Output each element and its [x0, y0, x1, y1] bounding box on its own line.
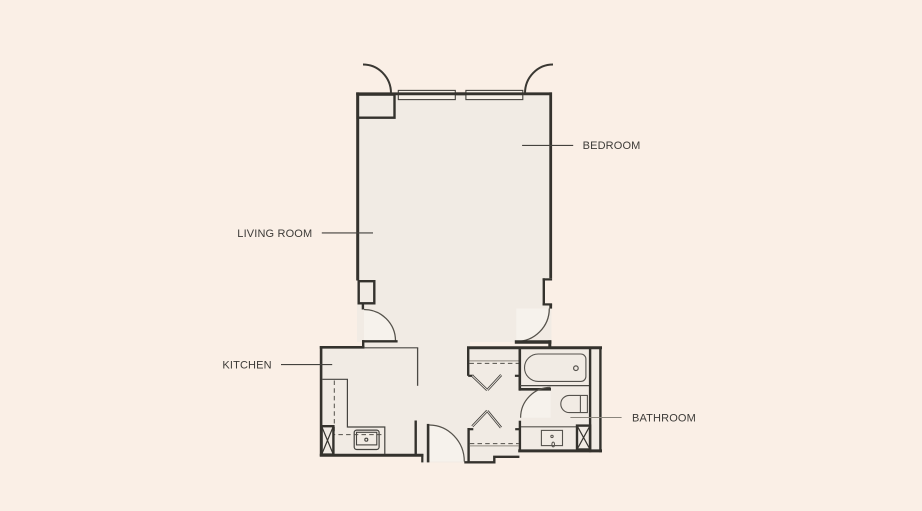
svg-text:KITCHEN: KITCHEN	[222, 360, 271, 372]
svg-text:BEDROOM: BEDROOM	[583, 140, 641, 152]
svg-text:BATHROOM: BATHROOM	[632, 413, 696, 425]
svg-text:LIVING ROOM: LIVING ROOM	[237, 228, 312, 240]
